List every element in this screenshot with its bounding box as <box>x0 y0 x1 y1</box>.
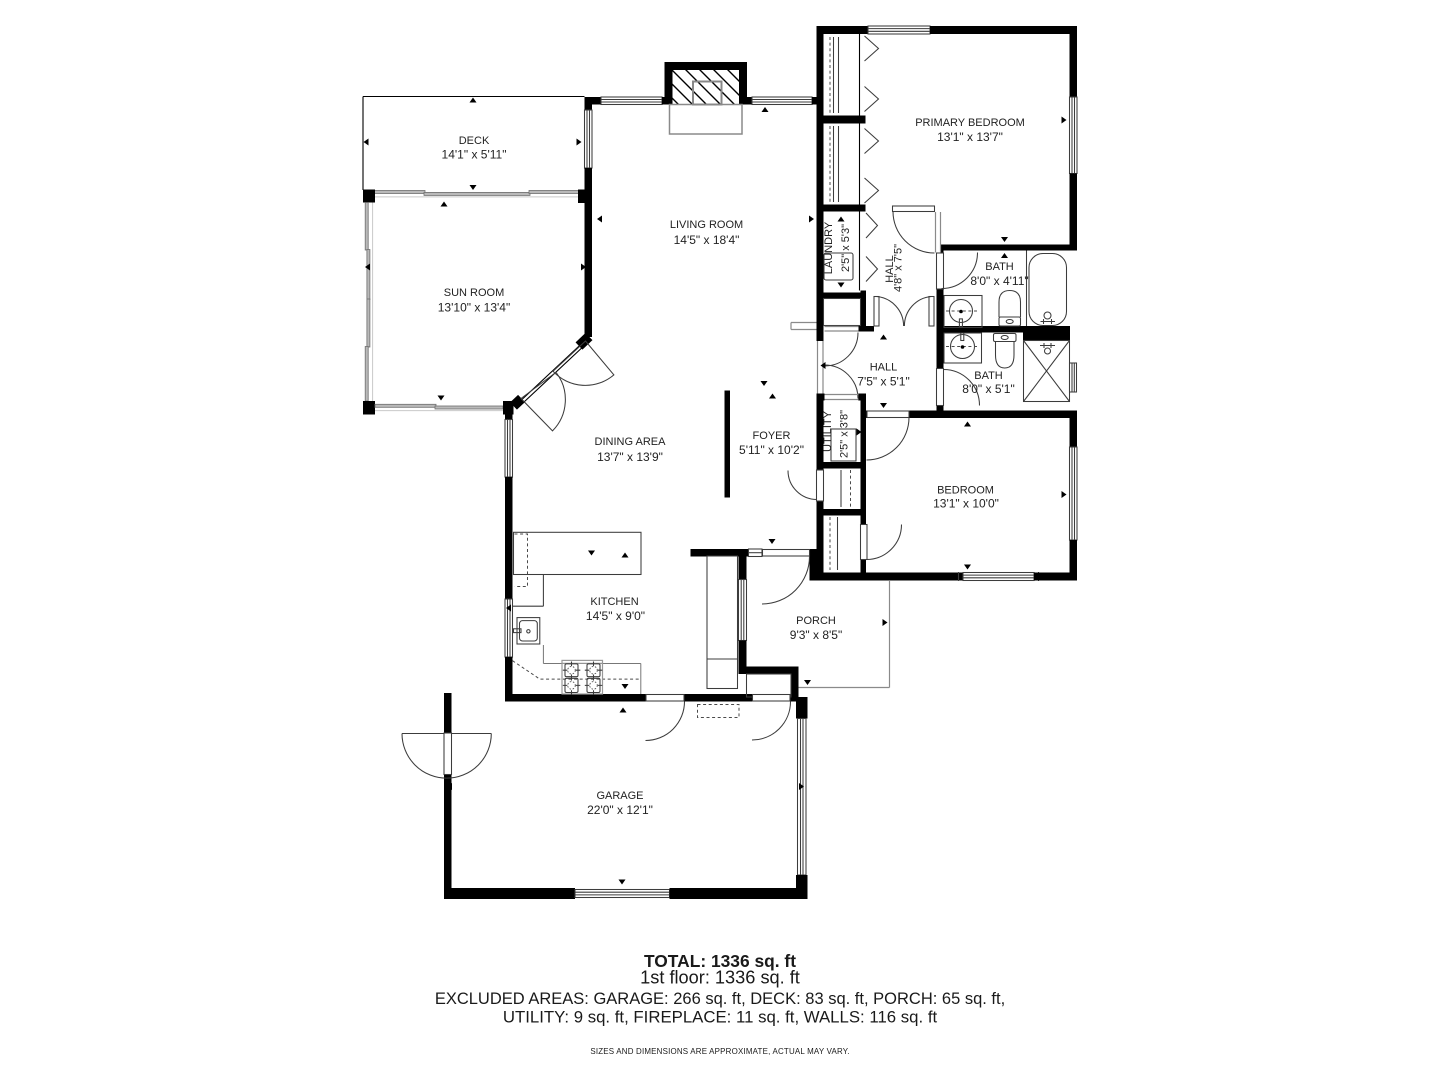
svg-text:13'7" x 13'9": 13'7" x 13'9" <box>597 450 663 464</box>
svg-text:DECK: DECK <box>459 135 490 147</box>
svg-text:KITCHEN: KITCHEN <box>590 596 638 608</box>
svg-text:13'1" x 10'0": 13'1" x 10'0" <box>933 497 999 511</box>
svg-text:14'1" x 5'11": 14'1" x 5'11" <box>442 148 507 162</box>
svg-text:EXCLUDED AREAS: GARAGE: 266 sq: EXCLUDED AREAS: GARAGE: 266 sq. ft, DECK… <box>435 990 1005 1008</box>
svg-text:DINING AREA: DINING AREA <box>595 436 667 448</box>
svg-text:SIZES AND DIMENSIONS ARE APPRO: SIZES AND DIMENSIONS ARE APPROXIMATE, AC… <box>590 1047 849 1056</box>
svg-text:LIVING ROOM: LIVING ROOM <box>670 219 743 231</box>
svg-text:HALL: HALL <box>870 362 898 374</box>
svg-text:BATH: BATH <box>974 370 1003 382</box>
svg-text:5'11" x 10'2": 5'11" x 10'2" <box>739 443 804 457</box>
svg-text:BEDROOM: BEDROOM <box>937 485 994 497</box>
svg-text:LAUNDRY: LAUNDRY <box>823 221 835 274</box>
svg-text:13'1" x 13'7": 13'1" x 13'7" <box>937 130 1003 144</box>
svg-text:9'3" x 8'5": 9'3" x 8'5" <box>790 628 842 642</box>
svg-text:SUN ROOM: SUN ROOM <box>444 287 505 299</box>
svg-text:8'0" x 4'11": 8'0" x 4'11" <box>970 274 1028 288</box>
svg-text:13'10" x 13'4": 13'10" x 13'4" <box>438 301 511 315</box>
svg-text:22'0" x 12'1": 22'0" x 12'1" <box>587 803 653 817</box>
svg-text:4'8" x 7'5": 4'8" x 7'5" <box>893 244 905 292</box>
svg-text:14'5" x 18'4": 14'5" x 18'4" <box>674 233 740 247</box>
svg-text:7'5" x 5'1": 7'5" x 5'1" <box>857 375 909 389</box>
svg-text:BATH: BATH <box>985 261 1014 273</box>
svg-text:2'5" x 5'3": 2'5" x 5'3" <box>840 224 852 272</box>
svg-text:8'0" x 5'1": 8'0" x 5'1" <box>962 382 1014 396</box>
svg-text:PRIMARY BEDROOM: PRIMARY BEDROOM <box>915 117 1025 129</box>
svg-text:UTILITY: 9 sq. ft, FIREPLACE:: UTILITY: 9 sq. ft, FIREPLACE: 11 sq. ft,… <box>503 1008 938 1027</box>
svg-text:PORCH: PORCH <box>796 615 836 627</box>
svg-text:14'5" x 9'0": 14'5" x 9'0" <box>586 609 645 623</box>
svg-text:GARAGE: GARAGE <box>596 790 643 802</box>
svg-text:1st floor: 1336 sq. ft: 1st floor: 1336 sq. ft <box>640 968 800 988</box>
svg-text:UTILITY: UTILITY <box>822 410 834 452</box>
svg-text:FOYER: FOYER <box>753 430 791 442</box>
svg-text:2'5" x 3'8": 2'5" x 3'8" <box>839 410 851 458</box>
